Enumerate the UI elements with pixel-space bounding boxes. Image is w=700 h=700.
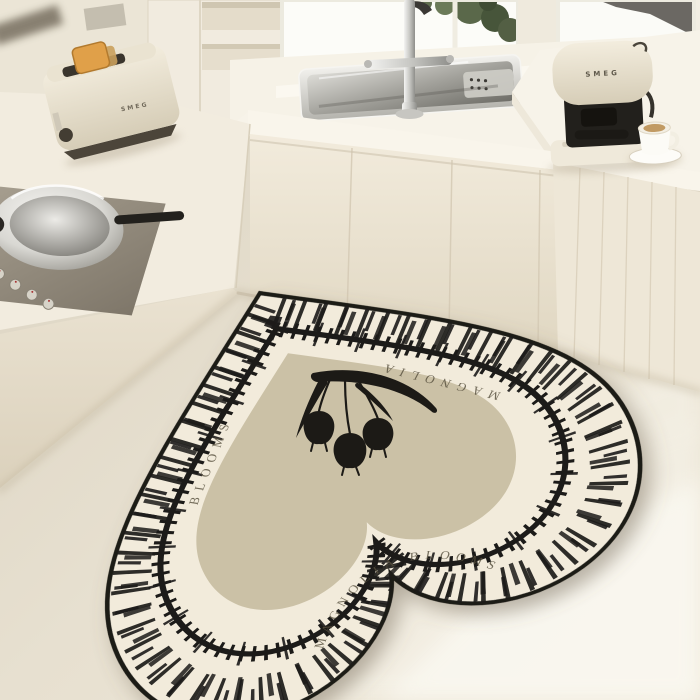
tulip-flower — [363, 418, 394, 450]
sink-deck — [463, 69, 515, 98]
tulip-flower — [334, 433, 367, 468]
wok-loop-handle — [0, 217, 2, 232]
faucet-base — [396, 109, 424, 119]
kitchen-photo: SMEG SMEG — [0, 0, 700, 700]
group-head — [580, 107, 617, 127]
portafilter — [575, 130, 629, 140]
tulip-flower — [304, 411, 335, 444]
scene-canvas: SMEG SMEG — [0, 0, 700, 700]
